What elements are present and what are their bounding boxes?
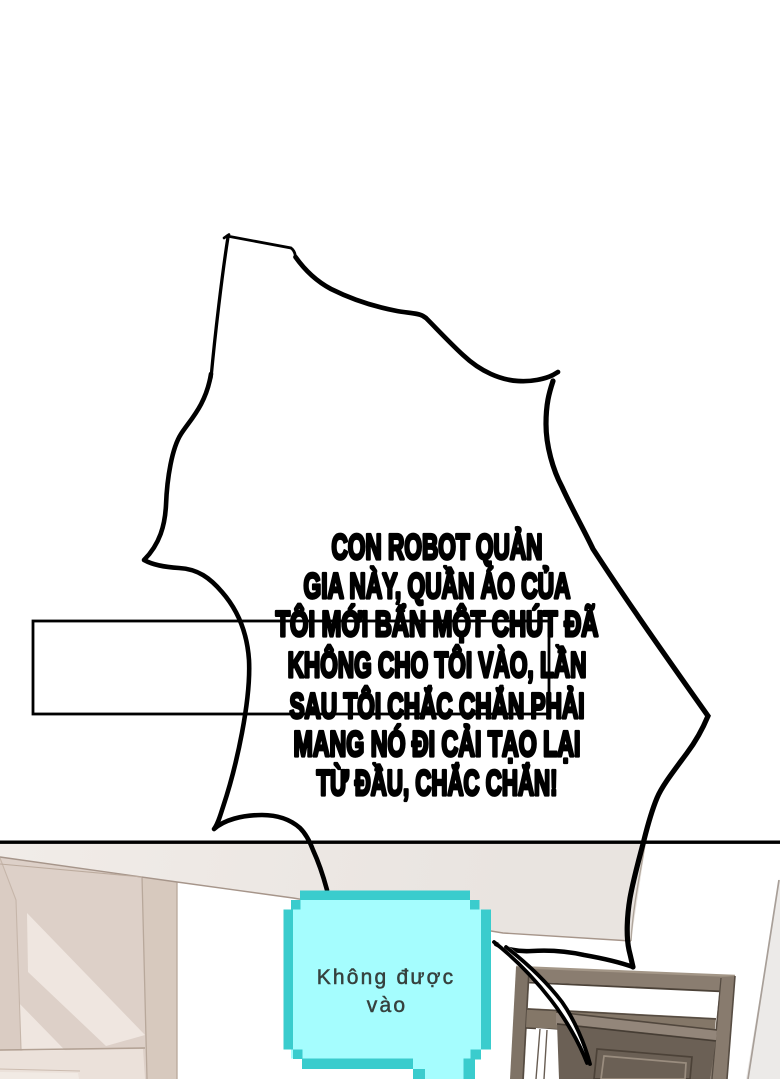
svg-text:SAU TÔI CHẮC CHẮN PHẢI: SAU TÔI CHẮC CHẮN PHẢI (289, 686, 584, 726)
svg-text:MANG NÓ ĐI CẢI TẠO LẠI: MANG NÓ ĐI CẢI TẠO LẠI (294, 724, 581, 764)
svg-text:TỪ ĐẦU, CHẮC CHẮN!: TỪ ĐẦU, CHẮC CHẮN! (316, 763, 557, 804)
svg-text:Không được: Không được (317, 966, 456, 989)
svg-text:vào: vào (367, 994, 407, 1017)
svg-text:CON ROBOT QUẢN: CON ROBOT QUẢN (332, 527, 543, 567)
svg-text:KHÔNG CHO TÔI VÀO, LẦN: KHÔNG CHO TÔI VÀO, LẦN (288, 645, 587, 685)
svg-text:GIA NÀY, QUẦN ÁO CỦA: GIA NÀY, QUẦN ÁO CỦA (304, 566, 571, 606)
